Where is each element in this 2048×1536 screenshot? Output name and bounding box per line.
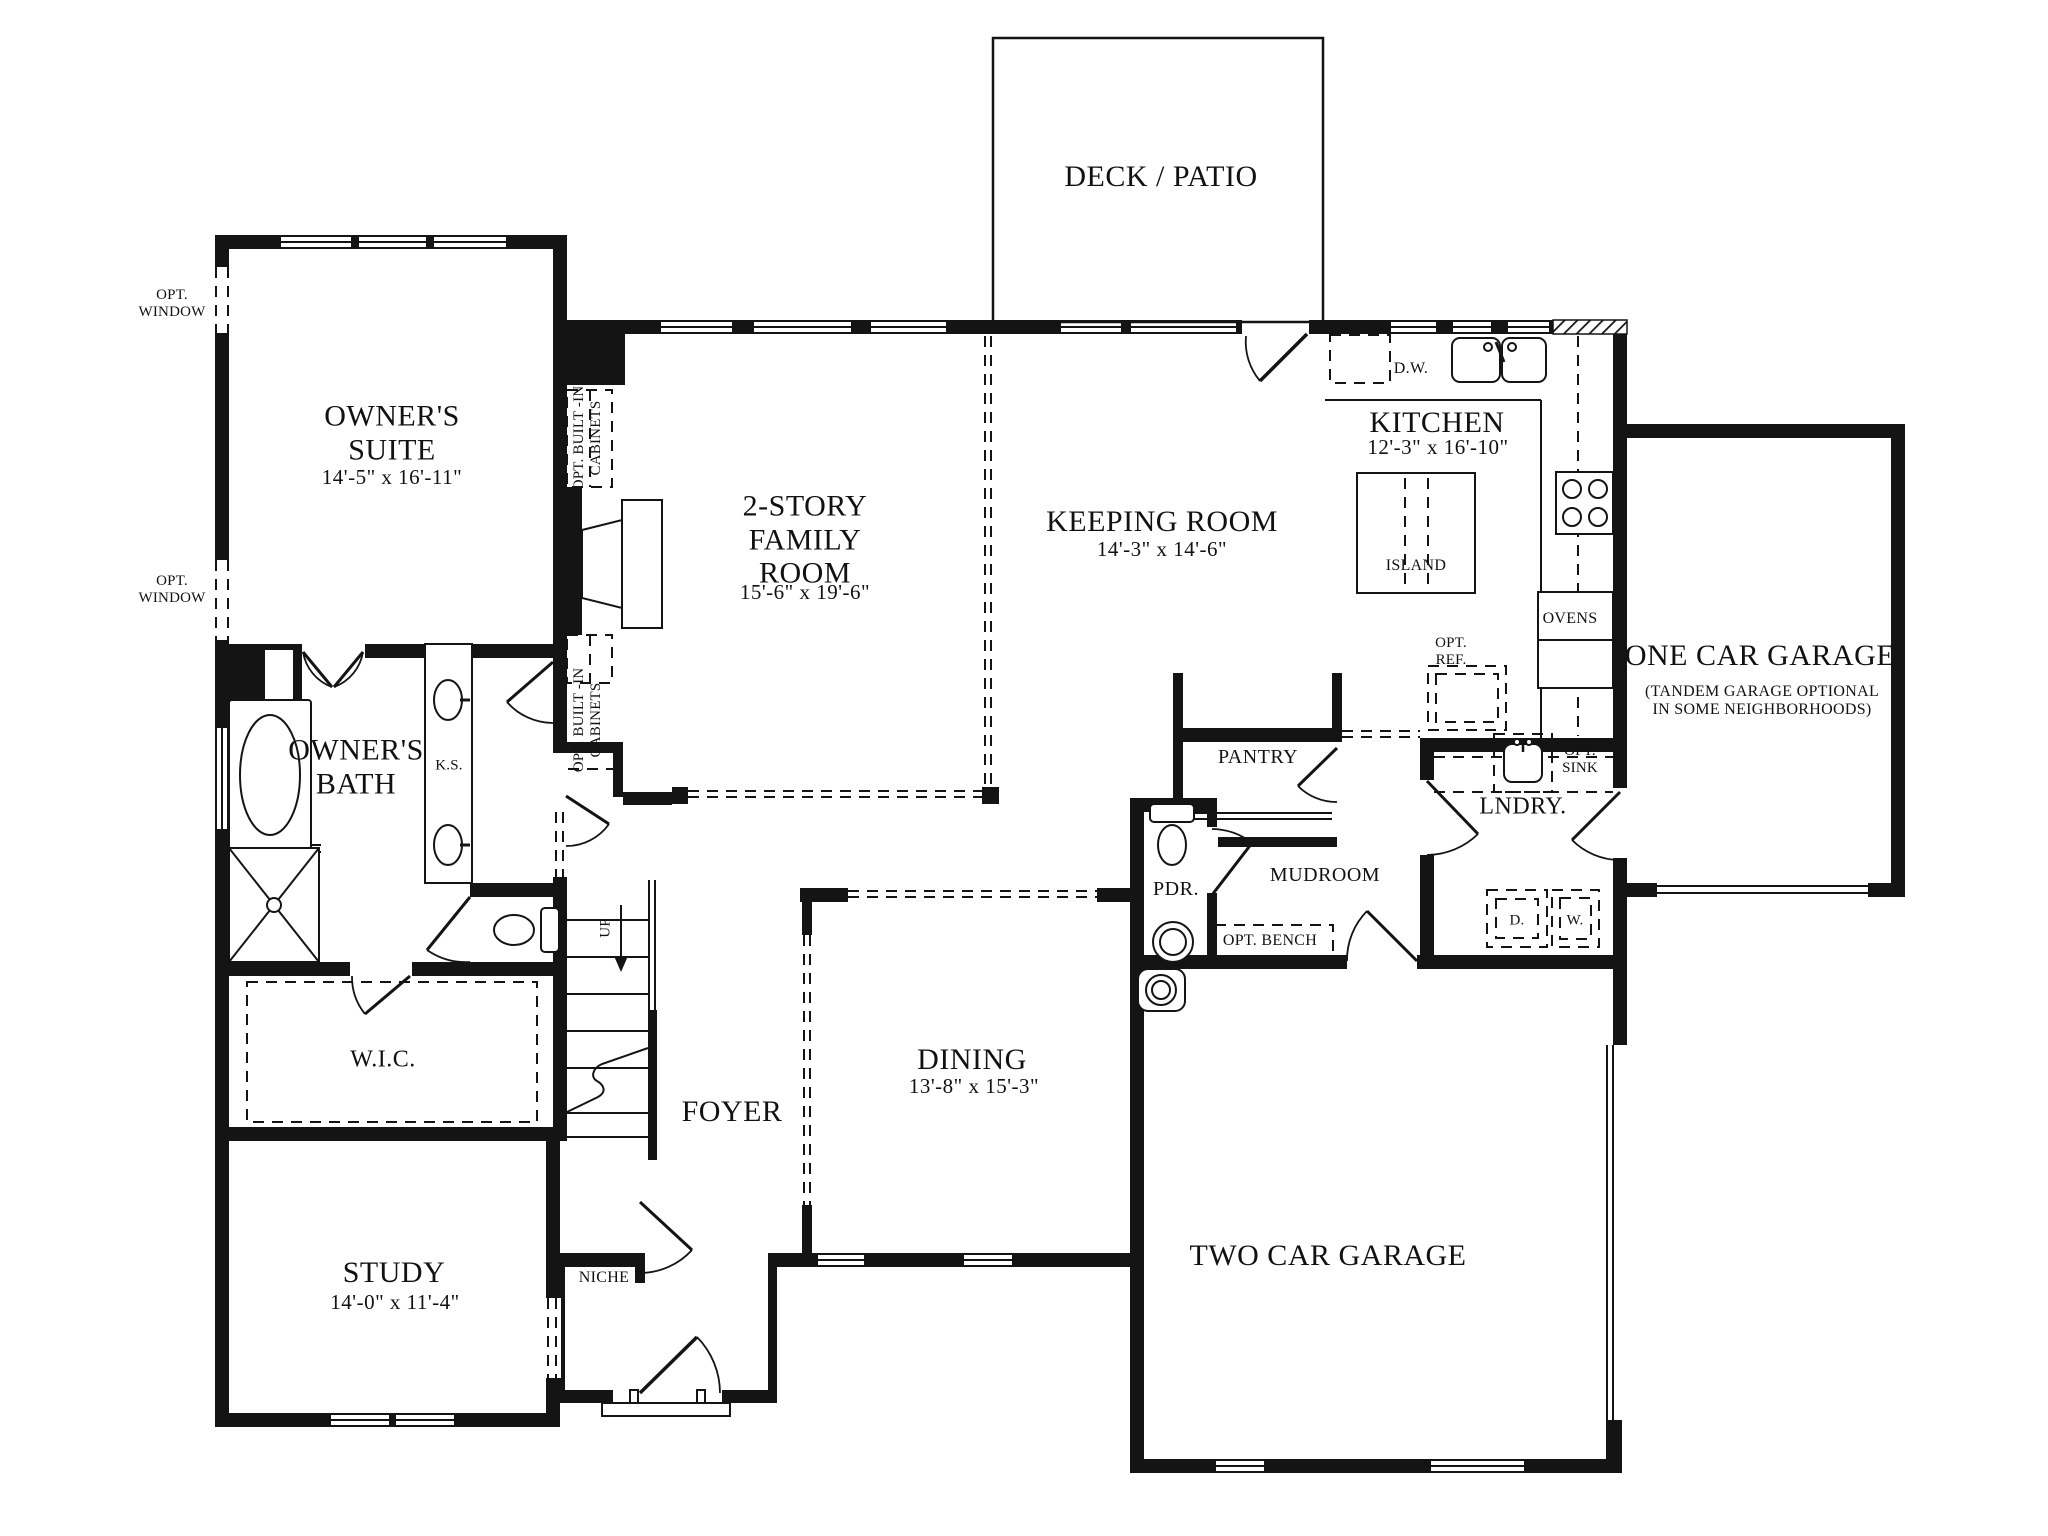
note-island: ISLAND: [1386, 557, 1446, 575]
note-opt-bench: OPT. BENCH: [1223, 932, 1317, 950]
room-dims-study: 14'-0" x 11'-4": [330, 1291, 459, 1315]
note-dryer: D.: [1510, 913, 1525, 930]
cooktop-icon: [1556, 472, 1613, 534]
note-opt-sink: OPT. SINK: [1562, 743, 1598, 777]
note-opt-cabinets-upper: OPT. BUILT -IN CABINETS: [571, 386, 605, 491]
room-dims-owners-suite: 14'-5" x 16'-11": [322, 466, 462, 490]
room-note-one-car-garage: (TANDEM GARAGE OPTIONAL IN SOME NEIGHBOR…: [1645, 683, 1879, 719]
room-label-two-car-garage: TWO CAR GARAGE: [1190, 1239, 1467, 1273]
note-ovens: OVENS: [1543, 610, 1598, 628]
note-knee-space: K.S.: [435, 758, 462, 775]
room-label-owners-bath: OWNER'S BATH: [288, 733, 424, 800]
room-label-owners-suite: OWNER'S SUITE: [324, 399, 460, 466]
utility-sink-icon: [1138, 969, 1185, 1011]
room-label-wic: W.I.C.: [350, 1047, 415, 1074]
room-label-mudroom: MUDROOM: [1270, 864, 1380, 886]
note-opt-window-lower: OPT. WINDOW: [138, 573, 205, 607]
powder-sink-icon: [1153, 922, 1193, 962]
floor-plan: DECK / PATIO OWNER'S SUITE 14'-5" x 16'-…: [0, 0, 2048, 1536]
note-stairs-up: UP: [598, 918, 615, 938]
room-label-deck: DECK / PATIO: [1064, 160, 1257, 194]
note-washer: W.: [1567, 913, 1584, 930]
room-label-pantry: PANTRY: [1218, 746, 1298, 768]
note-opt-ref: OPT. REF.: [1435, 635, 1467, 669]
room-dims-dining: 13'-8" x 15'-3": [909, 1075, 1039, 1099]
note-dishwasher: D.W.: [1394, 360, 1428, 378]
room-label-keeping-room: KEEPING ROOM: [1046, 505, 1278, 539]
room-label-foyer: FOYER: [682, 1095, 783, 1129]
island-icon: [1357, 473, 1475, 593]
room-label-one-car-garage: ONE CAR GARAGE: [1625, 639, 1895, 673]
room-dims-kitchen: 12'-3" x 16'-10": [1367, 436, 1508, 460]
fireplace-icon: [582, 500, 662, 628]
note-opt-window-upper: OPT. WINDOW: [138, 287, 205, 321]
optional-wall-hatch: [1553, 320, 1627, 334]
room-dims-family-room: 15'-6" x 19'-6": [740, 581, 870, 605]
toilet-icon: [494, 908, 559, 952]
shower-icon: [229, 848, 319, 962]
double-ovens-icon: [1538, 592, 1613, 688]
room-label-study: STUDY: [343, 1256, 446, 1290]
room-label-family-room: 2-STORY FAMILY ROOM: [743, 490, 868, 591]
laundry-sink-icon: [1504, 738, 1542, 782]
note-niche: NICHE: [579, 1269, 629, 1287]
room-label-powder: PDR.: [1153, 878, 1199, 900]
stoop: [602, 1403, 730, 1416]
room-label-laundry: LNDRY.: [1479, 794, 1566, 821]
room-label-dining: DINING: [917, 1043, 1027, 1077]
kitchen-sink-icon: [1452, 338, 1546, 382]
room-dims-keeping-room: 14'-3" x 14'-6": [1097, 538, 1227, 562]
powder-toilet-icon: [1150, 804, 1194, 865]
note-opt-cabinets-lower: OPT. BUILT -IN CABINETS: [571, 668, 605, 773]
